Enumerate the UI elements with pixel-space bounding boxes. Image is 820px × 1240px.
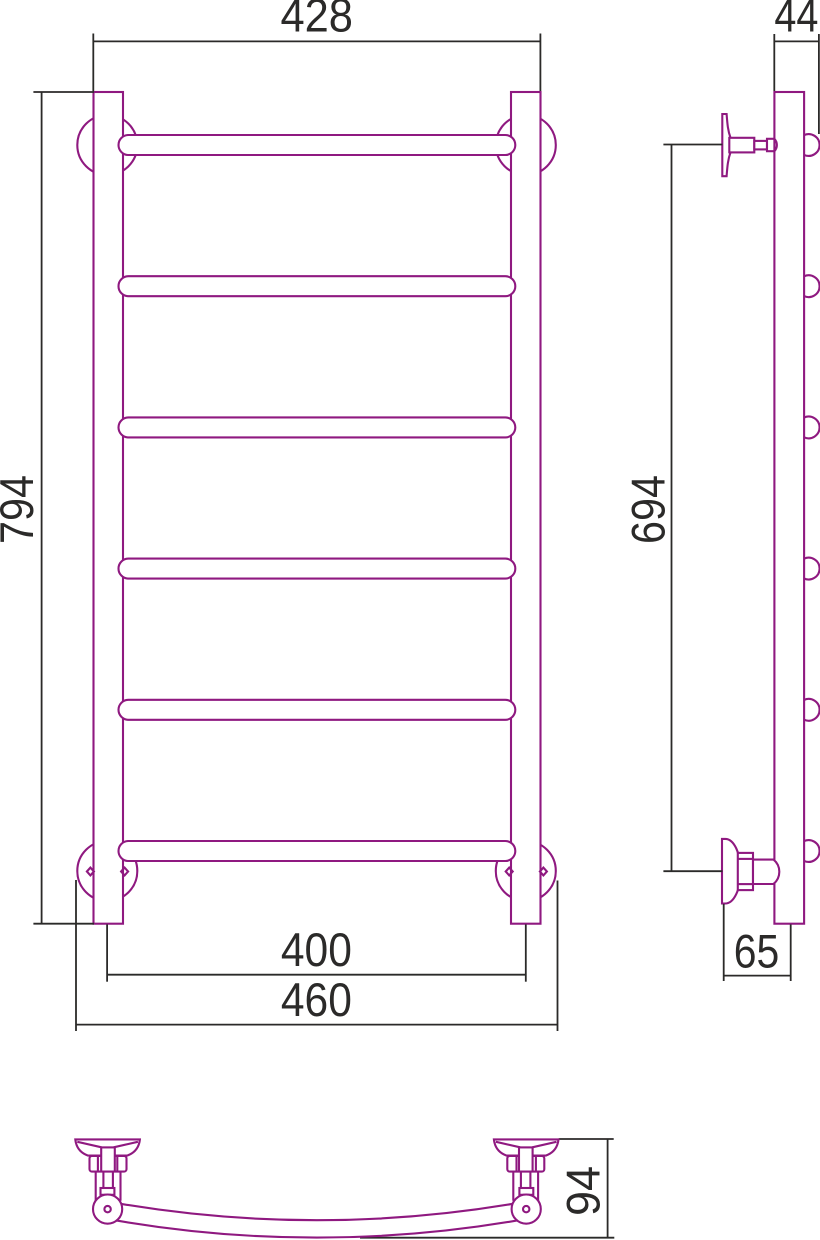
svg-text:460: 460 xyxy=(281,973,352,1026)
svg-text:65: 65 xyxy=(734,925,780,978)
svg-text:428: 428 xyxy=(280,0,353,42)
svg-text:794: 794 xyxy=(0,475,43,544)
svg-text:694: 694 xyxy=(622,475,675,544)
svg-text:44: 44 xyxy=(774,0,818,42)
svg-text:400: 400 xyxy=(281,923,352,976)
svg-text:94: 94 xyxy=(557,1166,610,1216)
